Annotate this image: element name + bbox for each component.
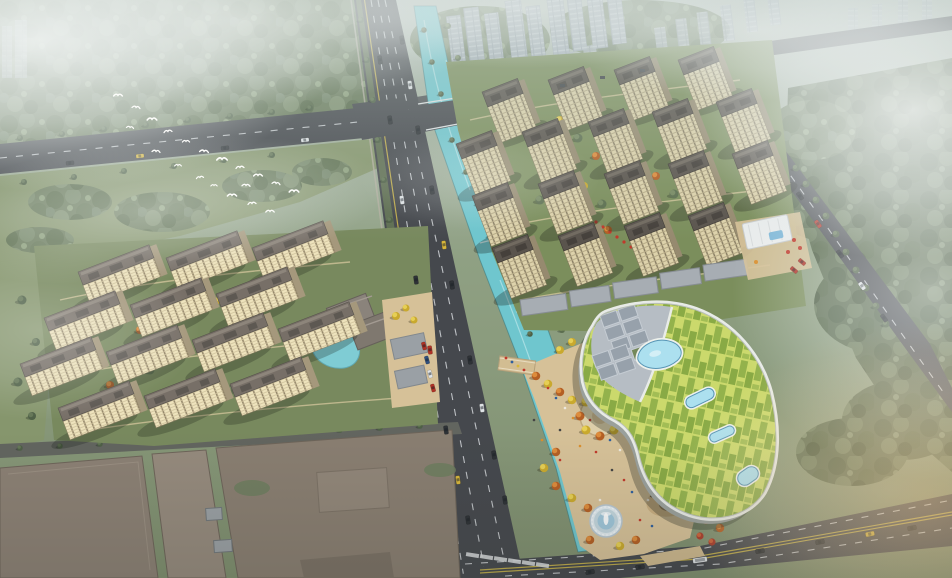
rendering-canvas (0, 0, 952, 578)
amenity-pavilion (735, 212, 812, 280)
parcel-a (0, 456, 158, 578)
left-residential-cluster (1, 218, 440, 455)
fountain (590, 505, 622, 537)
aerial-masterplan-rendering (0, 0, 952, 578)
